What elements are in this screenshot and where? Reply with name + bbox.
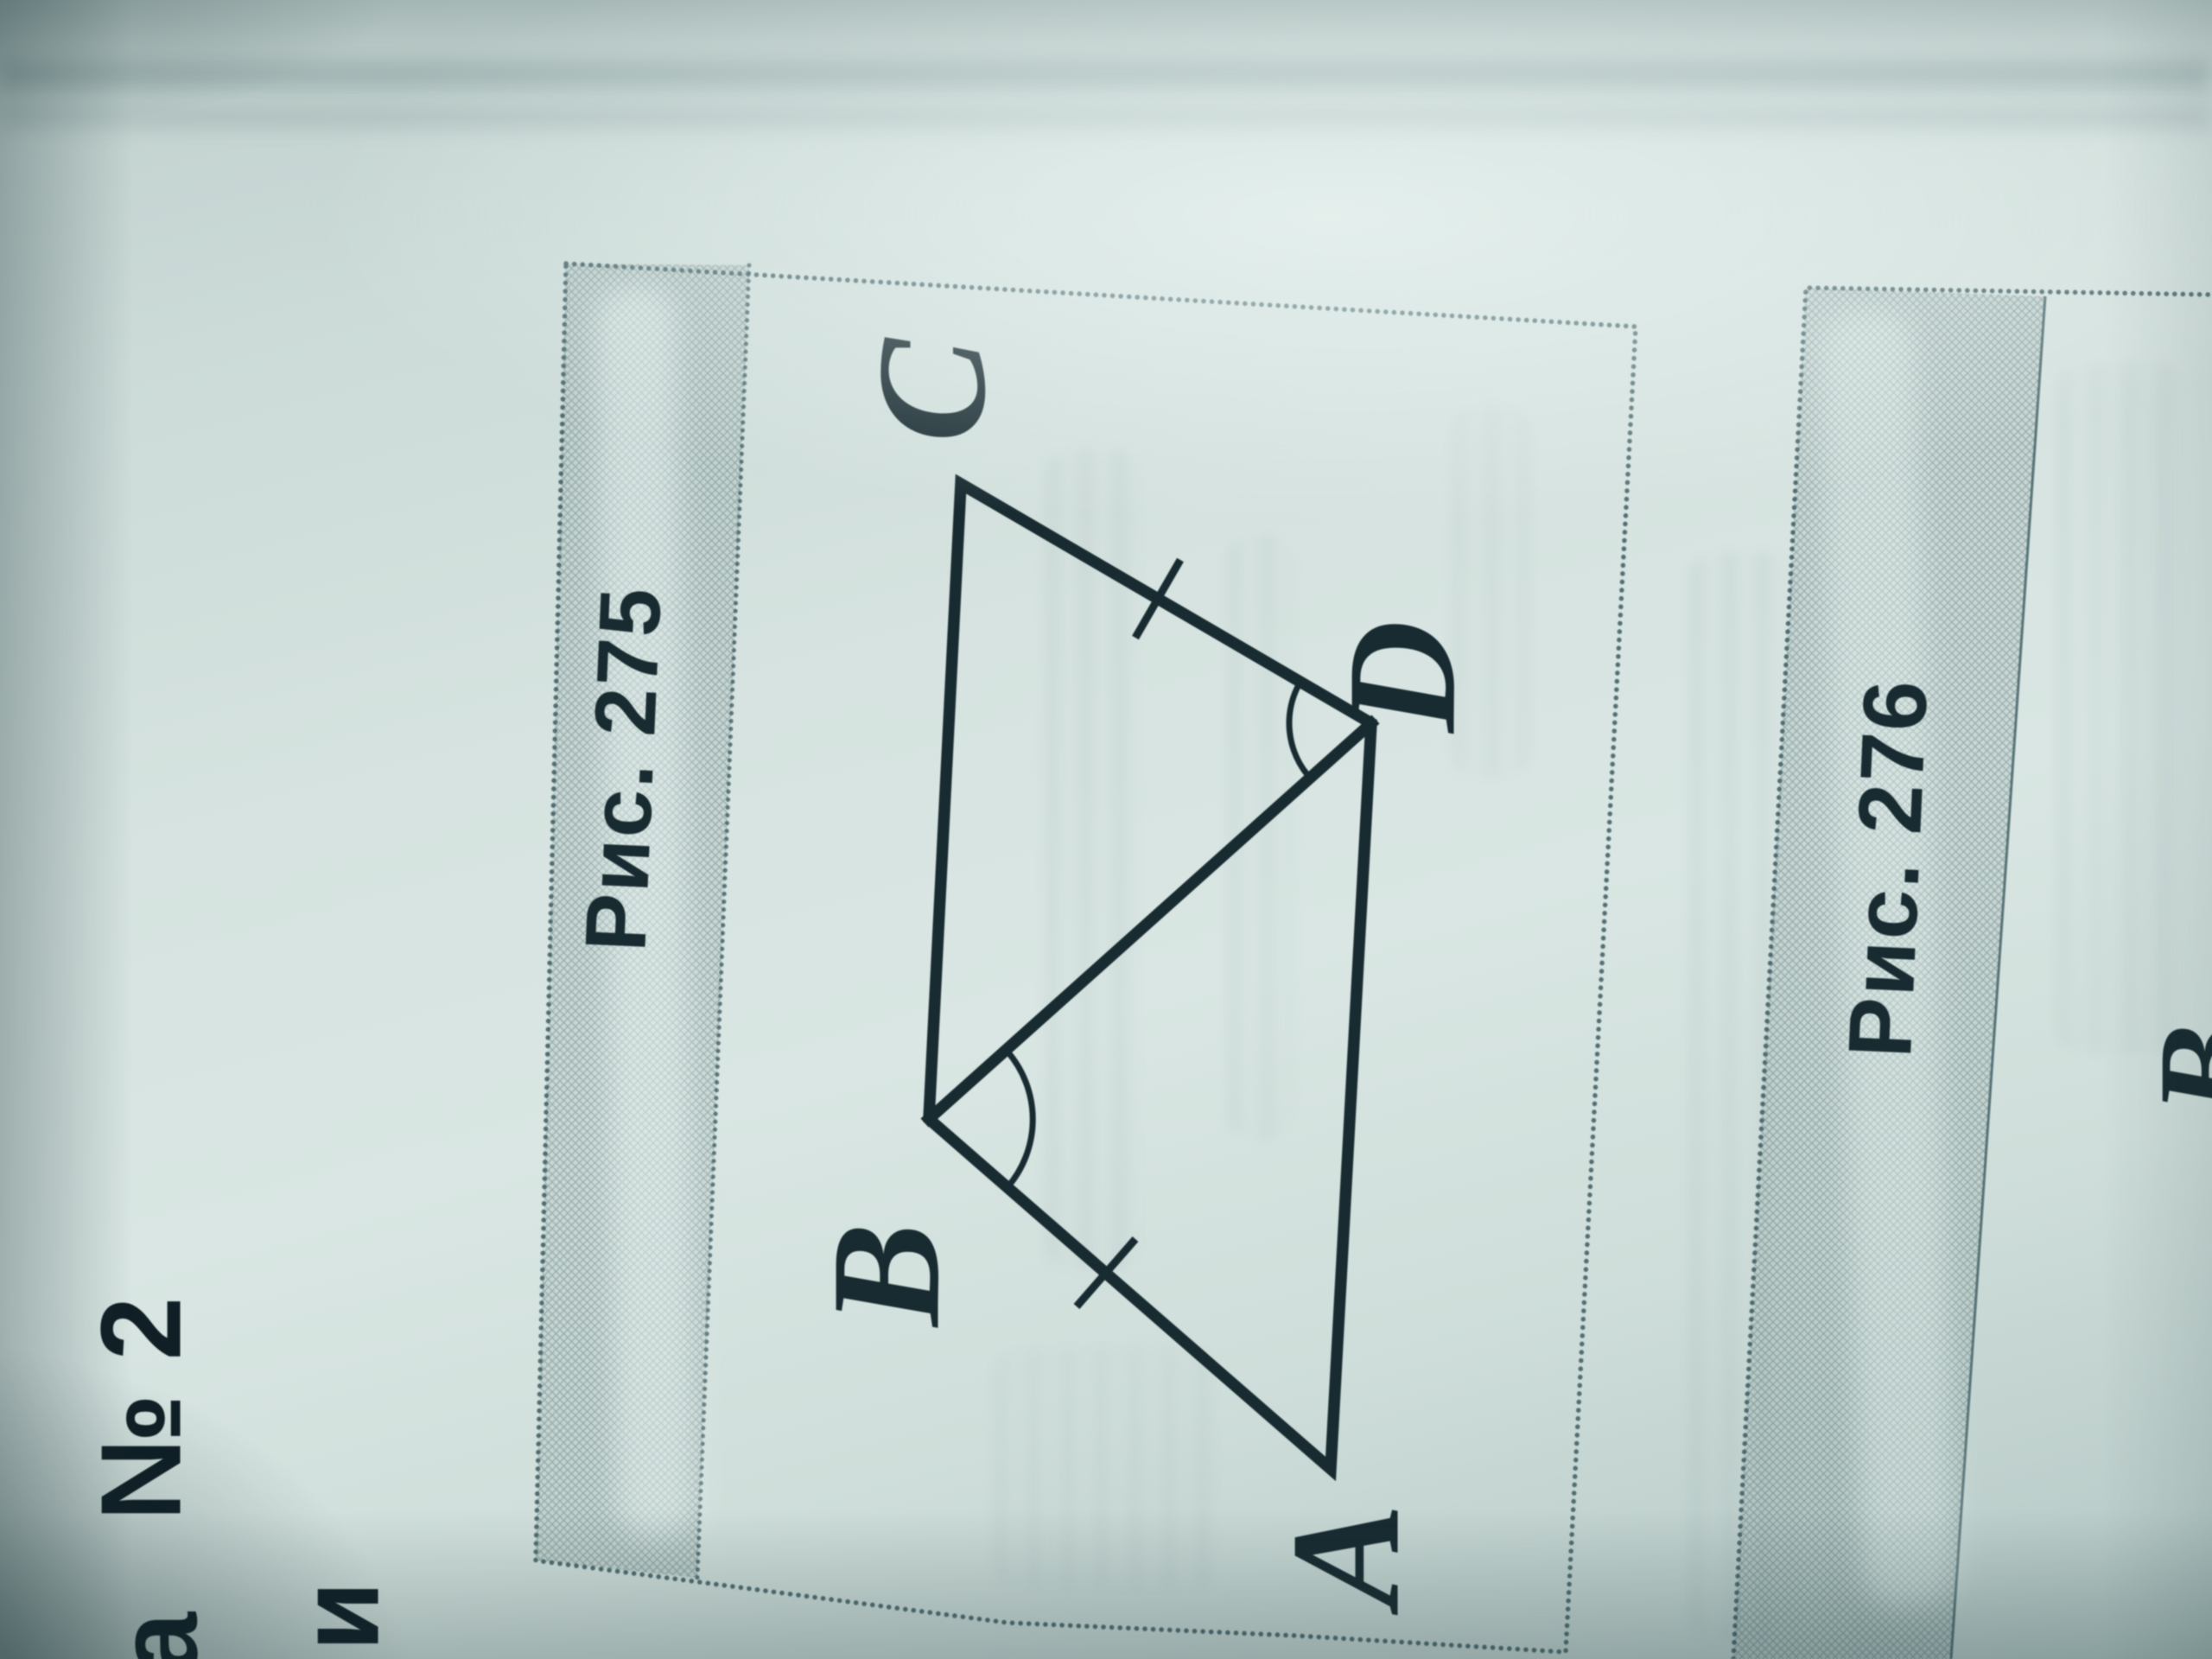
- margin-next-line: и: [274, 1580, 404, 1651]
- margin-number-label: № 2: [76, 1296, 207, 1521]
- figure-275-caption: Рис. 275: [566, 585, 681, 954]
- figure-276-caption: Рис. 276: [1829, 677, 1948, 1059]
- vertex-label-B: B: [797, 1223, 976, 1326]
- text-layer: Рис. 275 Рис. 276 C D B A B № 2 а и: [0, 0, 2212, 1659]
- figure-276-partial-vertex-label: B: [2127, 1024, 2212, 1116]
- photo-of-textbook-page: Рис. 275 Рис. 276 C D B A B № 2 а и: [0, 0, 2212, 1659]
- margin-word-end: а: [92, 1611, 223, 1659]
- vertex-label-D: D: [1313, 620, 1491, 733]
- vertex-label-C: C: [842, 339, 1021, 442]
- vertex-label-A: A: [1256, 1503, 1435, 1607]
